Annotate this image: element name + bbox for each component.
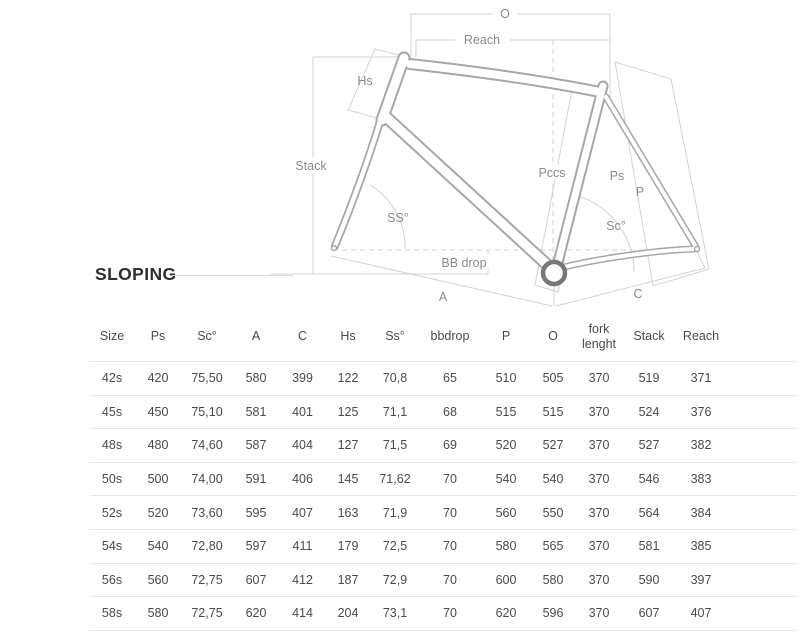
table-cell: 370 — [575, 362, 623, 396]
table-cell: 505 — [531, 362, 575, 396]
diagram-label-bb-drop: BB drop — [441, 256, 486, 270]
table-cell: 54s — [90, 529, 134, 563]
table-row: 54s54072,8059741117972,57058056537058138… — [90, 529, 797, 563]
table-cell: 145 — [325, 462, 371, 496]
table-cell: 515 — [481, 395, 531, 429]
table-cell: 411 — [280, 529, 325, 563]
table-cell: 607 — [623, 597, 675, 631]
spacer-cell — [727, 395, 797, 429]
front-dropout — [332, 246, 337, 251]
table-cell: 600 — [481, 563, 531, 597]
table-cell: 73,1 — [371, 597, 419, 631]
column-header-sc: Sc° — [182, 312, 232, 362]
spacer-cell — [727, 496, 797, 530]
geometry-table: Size Ps Sc° A C Hs Ss° bbdrop P O fork l… — [90, 312, 797, 631]
table-cell: 384 — [675, 496, 727, 530]
table-cell: 370 — [575, 429, 623, 463]
table-cell: 68 — [419, 395, 481, 429]
table-cell: 480 — [134, 429, 182, 463]
diagram-label-ps: Ps — [610, 169, 625, 183]
table-cell: 125 — [325, 395, 371, 429]
spacer-cell — [727, 362, 797, 396]
table-cell: 524 — [623, 395, 675, 429]
table-row: 52s52073,6059540716371,97056055037056438… — [90, 496, 797, 530]
spacer-cell — [727, 529, 797, 563]
table-cell: 72,5 — [371, 529, 419, 563]
table-cell: 515 — [531, 395, 575, 429]
table-cell: 565 — [531, 529, 575, 563]
table-cell: 581 — [232, 395, 280, 429]
diagram-label-o: O — [500, 7, 510, 21]
table-cell: 527 — [531, 429, 575, 463]
table-cell: 75,10 — [182, 395, 232, 429]
table-cell: 520 — [134, 496, 182, 530]
table-cell: 420 — [134, 362, 182, 396]
table-cell: 71,1 — [371, 395, 419, 429]
frame-inner-stroke — [335, 58, 696, 271]
table-cell: 42s — [90, 362, 134, 396]
table-cell: 587 — [232, 429, 280, 463]
table-cell: 540 — [481, 462, 531, 496]
table-cell: 564 — [623, 496, 675, 530]
table-cell: 187 — [325, 563, 371, 597]
rear-dropout — [695, 247, 700, 252]
table-cell: 70 — [419, 462, 481, 496]
column-header-spacer — [727, 312, 797, 362]
table-cell: 580 — [134, 597, 182, 631]
table-cell: 590 — [623, 563, 675, 597]
diagram-label-reach: Reach — [464, 33, 500, 47]
diagram-label-ss-angle: SS° — [387, 211, 409, 225]
table-cell: 397 — [675, 563, 727, 597]
table-cell: 127 — [325, 429, 371, 463]
table-cell: 204 — [325, 597, 371, 631]
table-cell: 58s — [90, 597, 134, 631]
geometry-page: O Reach Hs Stack SS° BB drop A Pccs Ps P… — [0, 0, 800, 640]
table-cell: 65 — [419, 362, 481, 396]
bottom-bracket-circle — [543, 262, 565, 284]
table-cell: 596 — [531, 597, 575, 631]
table-cell: 406 — [280, 462, 325, 496]
table-cell: 546 — [623, 462, 675, 496]
table-cell: 540 — [134, 529, 182, 563]
table-cell: 70 — [419, 597, 481, 631]
diagram-label-c: C — [633, 287, 642, 301]
table-cell: 122 — [325, 362, 371, 396]
table-cell: 520 — [481, 429, 531, 463]
table-cell: 550 — [531, 496, 575, 530]
table-cell: 540 — [531, 462, 575, 496]
column-header-ps: Ps — [134, 312, 182, 362]
spacer-cell — [727, 597, 797, 631]
table-cell: 597 — [232, 529, 280, 563]
table-cell: 560 — [134, 563, 182, 597]
table-cell: 376 — [675, 395, 727, 429]
table-cell: 72,75 — [182, 563, 232, 597]
table-cell: 70 — [419, 529, 481, 563]
table-cell: 45s — [90, 395, 134, 429]
column-header-size: Size — [90, 312, 134, 362]
table-cell: 510 — [481, 362, 531, 396]
table-cell: 385 — [675, 529, 727, 563]
table-cell: 580 — [481, 529, 531, 563]
table-row: 50s50074,0059140614571,62705405403705463… — [90, 462, 797, 496]
diagram-label-hs: Hs — [357, 74, 372, 88]
table-cell: 500 — [134, 462, 182, 496]
table-cell: 48s — [90, 429, 134, 463]
table-cell: 371 — [675, 362, 727, 396]
table-cell: 56s — [90, 563, 134, 597]
table-cell: 399 — [280, 362, 325, 396]
table-cell: 580 — [531, 563, 575, 597]
table-cell: 370 — [575, 395, 623, 429]
table-header: Size Ps Sc° A C Hs Ss° bbdrop P O fork l… — [90, 312, 797, 362]
table-cell: 383 — [675, 462, 727, 496]
table-row: 45s45075,1058140112571,16851551537052437… — [90, 395, 797, 429]
table-cell: 72,9 — [371, 563, 419, 597]
table-cell: 401 — [280, 395, 325, 429]
table-body: 42s42075,5058039912270,86551050537051937… — [90, 362, 797, 631]
column-header-c: C — [280, 312, 325, 362]
spacer-cell — [727, 462, 797, 496]
spacer-cell — [727, 429, 797, 463]
section-title: SLOPING — [95, 264, 177, 285]
table-cell: 620 — [232, 597, 280, 631]
table-cell: 50s — [90, 462, 134, 496]
table-cell: 620 — [481, 597, 531, 631]
diagram-label-pccs: Pccs — [538, 166, 565, 180]
table-header-row: Size Ps Sc° A C Hs Ss° bbdrop P O fork l… — [90, 312, 797, 362]
table-cell: 412 — [280, 563, 325, 597]
table-cell: 52s — [90, 496, 134, 530]
table-cell: 70 — [419, 563, 481, 597]
column-header-hs: Hs — [325, 312, 371, 362]
column-header-reach: Reach — [675, 312, 727, 362]
column-header-p: P — [481, 312, 531, 362]
table-cell: 74,00 — [182, 462, 232, 496]
table-cell: 370 — [575, 462, 623, 496]
table-cell: 370 — [575, 597, 623, 631]
table-cell: 404 — [280, 429, 325, 463]
table-cell: 163 — [325, 496, 371, 530]
table-cell: 527 — [623, 429, 675, 463]
column-header-a: A — [232, 312, 280, 362]
column-header-stack: Stack — [623, 312, 675, 362]
table-cell: 72,75 — [182, 597, 232, 631]
table-cell: 370 — [575, 563, 623, 597]
table-row: 42s42075,5058039912270,86551050537051937… — [90, 362, 797, 396]
diagram-label-a: A — [439, 290, 448, 304]
spacer-cell — [727, 563, 797, 597]
table-cell: 370 — [575, 496, 623, 530]
diagram-label-sc-angle: Sc° — [606, 219, 626, 233]
reach-line — [416, 40, 610, 57]
title-divider-line — [172, 275, 293, 276]
table-cell: 71,5 — [371, 429, 419, 463]
table-cell: 74,60 — [182, 429, 232, 463]
table-cell: 71,62 — [371, 462, 419, 496]
table-cell: 75,50 — [182, 362, 232, 396]
table-cell: 382 — [675, 429, 727, 463]
table-cell: 71,9 — [371, 496, 419, 530]
diagram-label-p: P — [636, 185, 644, 199]
table-cell: 580 — [232, 362, 280, 396]
table-cell: 73,60 — [182, 496, 232, 530]
table-cell: 179 — [325, 529, 371, 563]
table-cell: 70 — [419, 496, 481, 530]
table-cell: 607 — [232, 563, 280, 597]
table-cell: 414 — [280, 597, 325, 631]
table-cell: 595 — [232, 496, 280, 530]
table-cell: 407 — [280, 496, 325, 530]
column-header-o: O — [531, 312, 575, 362]
column-header-ss: Ss° — [371, 312, 419, 362]
table-cell: 560 — [481, 496, 531, 530]
table-cell: 450 — [134, 395, 182, 429]
table-cell: 72,80 — [182, 529, 232, 563]
table-row: 48s48074,6058740412771,56952052737052738… — [90, 429, 797, 463]
table-row: 58s58072,7562041420473,17062059637060740… — [90, 597, 797, 631]
table-cell: 70,8 — [371, 362, 419, 396]
table-cell: 581 — [623, 529, 675, 563]
table-cell: 69 — [419, 429, 481, 463]
table-row: 56s56072,7560741218772,97060058037059039… — [90, 563, 797, 597]
table-cell: 591 — [232, 462, 280, 496]
column-header-bbdrop: bbdrop — [419, 312, 481, 362]
table-cell: 519 — [623, 362, 675, 396]
table-cell: 370 — [575, 529, 623, 563]
column-header-fork-lenght: fork lenght — [575, 312, 623, 362]
table-cell: 407 — [675, 597, 727, 631]
diagram-label-stack: Stack — [295, 159, 327, 173]
